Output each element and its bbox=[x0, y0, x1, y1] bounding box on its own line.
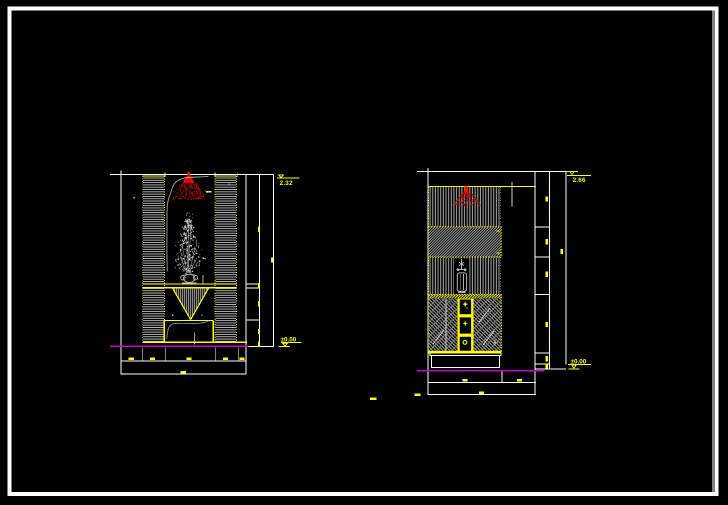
svg-text:2.66: 2.66 bbox=[573, 177, 586, 184]
svg-text:2.32: 2.32 bbox=[280, 180, 293, 187]
